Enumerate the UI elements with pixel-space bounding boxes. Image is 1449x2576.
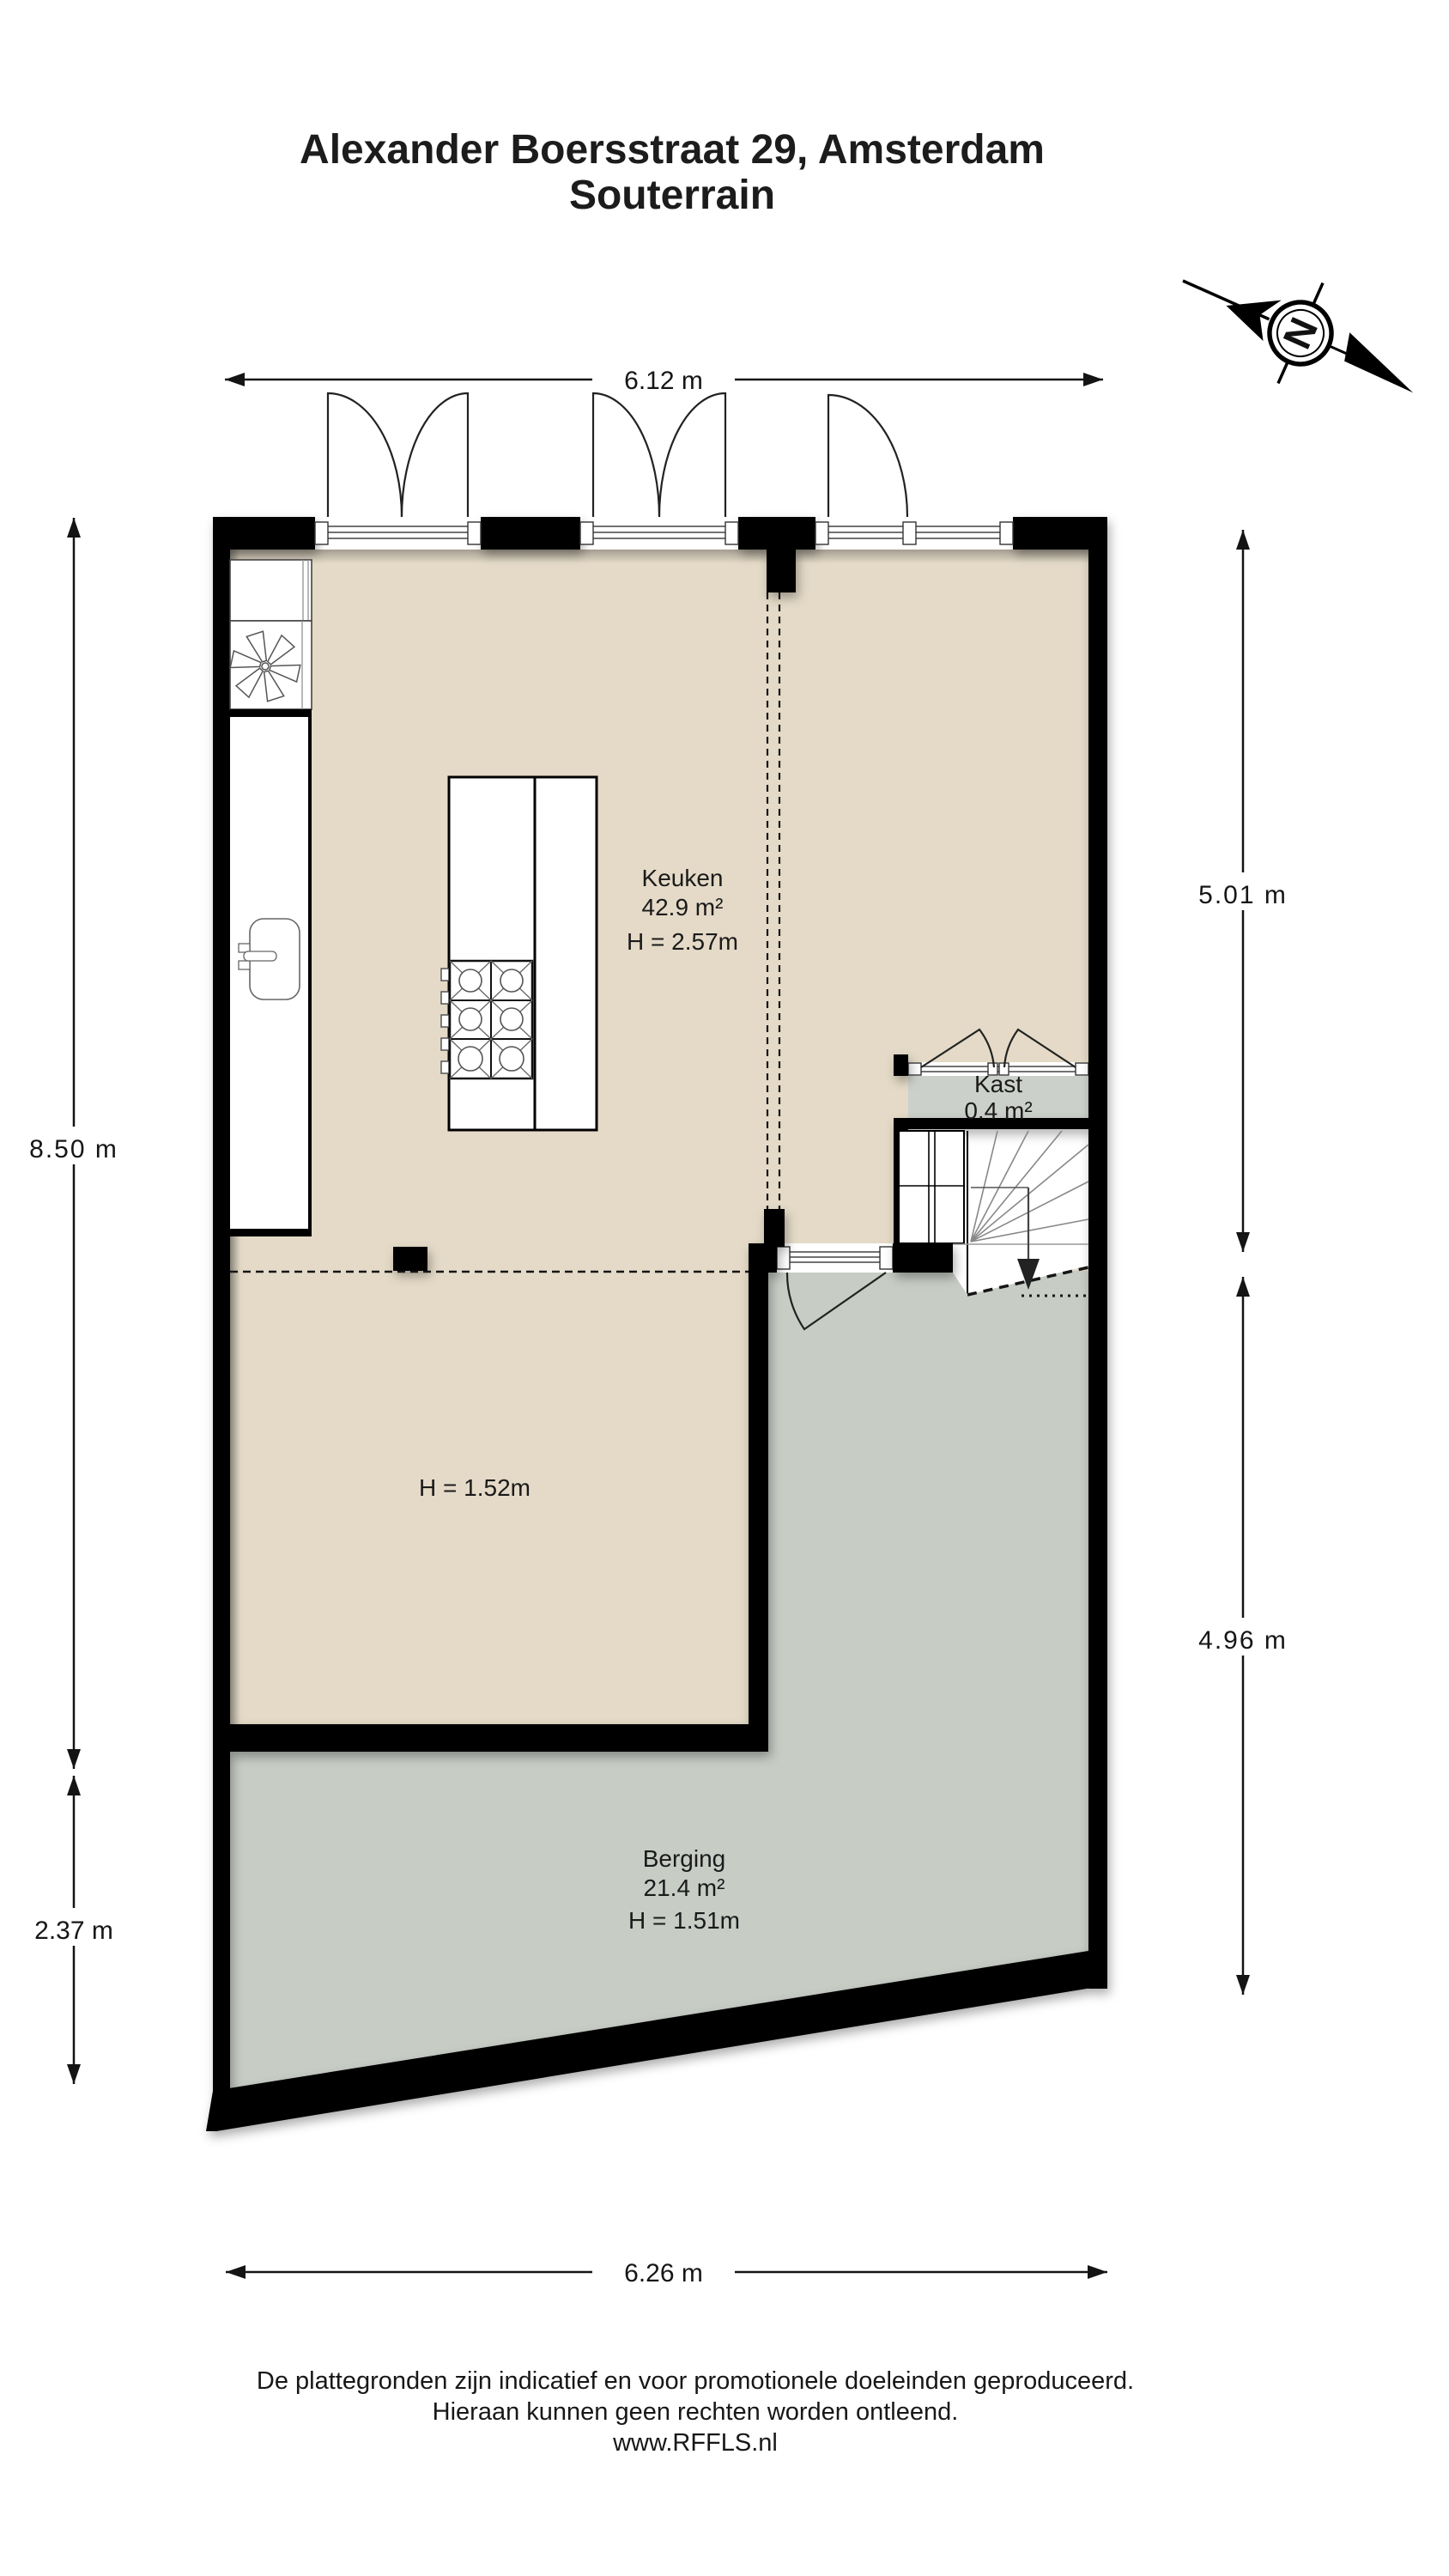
berging-name: Berging (643, 1845, 726, 1872)
dimension-right-upper: 5.01 m (1193, 530, 1294, 1252)
page-title-line2: Souterrain (569, 173, 775, 218)
french-door-swing (593, 393, 659, 517)
kitchen-counter (229, 560, 312, 1236)
berging-height: H = 1.51m (628, 1907, 740, 1934)
dimension-bottom: 6.26 m (226, 2259, 1107, 2287)
keuken-name: Keuken (642, 865, 724, 891)
footer-line2: Hieraan kunnen geen rechten worden ontle… (433, 2398, 959, 2426)
compass-north-icon: N (1161, 231, 1439, 435)
floorplan-canvas: Alexander Boersstraat 29, Amsterdam Sout… (0, 0, 1449, 2576)
footer-disclaimer: De plattegronden zijn indicatief en voor… (257, 2367, 1134, 2457)
kast-name: Kast (974, 1071, 1022, 1097)
dimension-left-upper: 8.50 m (26, 518, 122, 1769)
stove-burners-icon (441, 961, 532, 1078)
footer-line3: www.RFFLS.nl (612, 2429, 778, 2457)
entry-door-swing (828, 395, 907, 517)
dimension-top-label: 6.12 m (624, 367, 703, 395)
dimension-right-lower: 4.96 m (1193, 1277, 1294, 1995)
dimension-left-lower: 2.37 m (26, 1776, 122, 2084)
dimension-left-lower-label: 2.37 m (34, 1917, 113, 1945)
dimension-right-upper-label: 5.01 m (1198, 881, 1288, 909)
facade-openings (315, 393, 1013, 544)
keuken-area: 42.9 m² (642, 894, 724, 920)
berging-area: 21.4 m² (644, 1874, 725, 1901)
floorplan-page: Alexander Boersstraat 29, Amsterdam Sout… (0, 0, 1449, 2576)
keuken-height: H = 2.57m (627, 928, 738, 955)
kast-area: 0.4 m² (964, 1097, 1032, 1124)
dimension-left-upper-label: 8.50 m (29, 1135, 118, 1163)
french-door-swing (328, 393, 402, 517)
lower-room-height: H = 1.52m (419, 1474, 530, 1501)
french-door-swing (402, 393, 468, 517)
wall-shadow-top (230, 550, 1088, 563)
footer-line1: De plattegronden zijn indicatief en voor… (257, 2367, 1134, 2395)
dimension-bottom-label: 6.26 m (624, 2259, 703, 2287)
page-title-line1: Alexander Boersstraat 29, Amsterdam (300, 127, 1045, 173)
french-door-swing (659, 393, 725, 517)
dimension-top: 6.12 m (225, 367, 1103, 395)
kitchen-island (441, 777, 597, 1130)
dimension-right-lower-label: 4.96 m (1198, 1626, 1288, 1655)
